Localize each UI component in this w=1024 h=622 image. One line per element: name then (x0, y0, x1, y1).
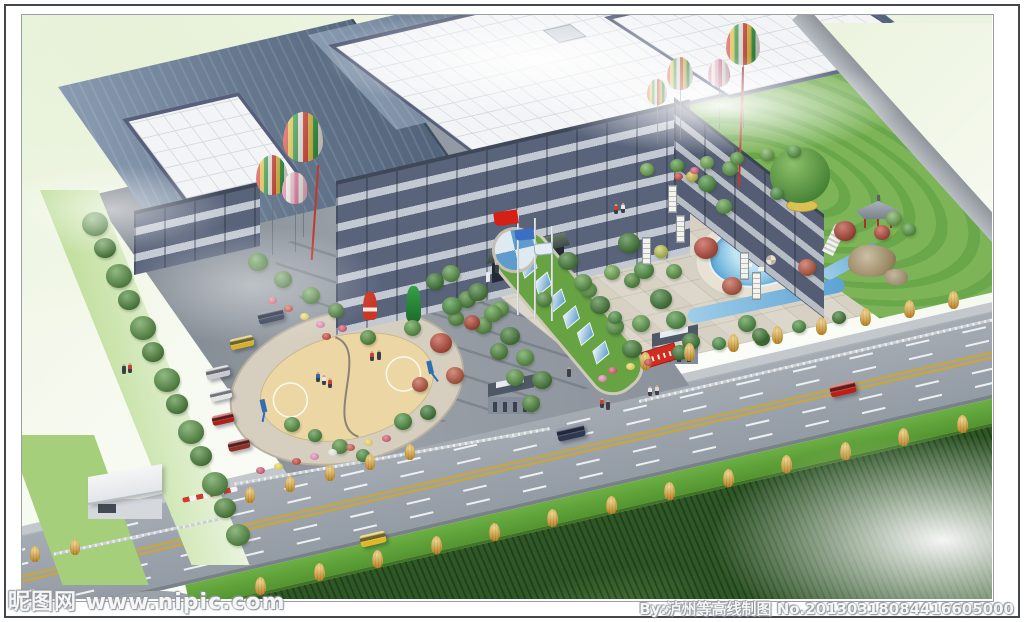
tree (640, 163, 654, 176)
tree (770, 187, 784, 200)
tree (632, 315, 650, 332)
tree (284, 417, 300, 432)
flagpole (517, 210, 519, 315)
glass-canopy (592, 340, 609, 364)
tree (886, 211, 902, 226)
flagpole (551, 226, 553, 321)
car (211, 412, 235, 427)
golden-tree (664, 482, 675, 500)
cloud-haze (122, 225, 382, 345)
person (621, 203, 625, 213)
pool-lounger (758, 267, 764, 271)
golden-tree (325, 465, 335, 481)
tree (226, 524, 250, 546)
tree (484, 305, 502, 322)
tree (666, 264, 682, 279)
tree (902, 223, 916, 236)
tree (700, 156, 714, 169)
person (567, 367, 571, 377)
golden-tree (30, 546, 40, 562)
tree (670, 159, 684, 172)
flagpole (534, 218, 536, 318)
flower-bush (382, 435, 391, 442)
golden-tree (728, 334, 739, 352)
tree (654, 245, 668, 258)
light-pylon (668, 185, 677, 213)
flower-bush (364, 439, 373, 446)
tree (650, 289, 672, 309)
golden-tree (70, 539, 80, 555)
golden-tree (816, 317, 827, 335)
golden-tree (957, 415, 968, 433)
tree (506, 369, 524, 386)
person (655, 385, 659, 395)
tree (446, 367, 464, 384)
tree (722, 277, 742, 295)
golden-tree (314, 563, 325, 581)
tree (426, 273, 444, 290)
tree (532, 371, 552, 389)
tree (214, 498, 236, 518)
tree (666, 311, 686, 329)
golden-tree (431, 536, 442, 554)
flower-bush (256, 467, 265, 474)
tree (308, 429, 322, 442)
tree (404, 320, 421, 336)
flower-bush (292, 458, 301, 465)
golden-tree (606, 496, 617, 514)
tree (394, 413, 412, 430)
light-pylon (752, 272, 761, 300)
tree (712, 337, 726, 350)
person (377, 350, 381, 360)
person (316, 372, 320, 382)
cloud-haze (542, 55, 902, 155)
person (328, 378, 332, 388)
tree (442, 297, 462, 315)
tree (574, 274, 592, 291)
flower-bush (328, 449, 337, 456)
tree (874, 225, 890, 240)
architectural-rendering: 昵图网 www.nipic.com By:泸州等高线制图 No.20130318… (0, 0, 1024, 622)
golden-tree (245, 487, 255, 503)
golden-tree (285, 476, 295, 492)
person (370, 351, 374, 361)
tree (608, 311, 622, 324)
golden-tree (948, 291, 959, 309)
tree (622, 340, 642, 358)
tree (798, 259, 816, 276)
person (495, 263, 499, 273)
flower-bush (674, 173, 683, 180)
light-pylon (740, 252, 749, 280)
tree (590, 296, 610, 314)
rock (884, 269, 908, 285)
tree (190, 446, 212, 466)
flower-bush (690, 167, 699, 174)
watermark-site-text: 昵图网 www.nipic.com (8, 584, 286, 616)
tree (142, 342, 164, 362)
golden-tree (372, 550, 383, 568)
white-flag (533, 242, 553, 256)
lion-statue (486, 271, 490, 282)
tree (558, 252, 578, 270)
tree (834, 221, 856, 241)
tree (442, 265, 460, 282)
flower-bush (274, 463, 283, 470)
golden-tree (904, 300, 915, 318)
tree (420, 405, 436, 420)
person (122, 364, 126, 374)
pool-umbrella (766, 255, 776, 265)
tree (752, 328, 768, 343)
person (606, 400, 610, 410)
tree (468, 283, 488, 301)
tree (536, 292, 552, 307)
mist-bottom-right (712, 435, 992, 599)
light-pylon (676, 215, 685, 243)
scene (22, 15, 992, 599)
golden-tree (860, 308, 871, 326)
tree (430, 333, 452, 353)
tree (412, 377, 428, 392)
flower-bush (598, 375, 607, 382)
tree (832, 311, 846, 324)
guard-house (88, 477, 162, 525)
tree (154, 368, 180, 392)
person (614, 204, 618, 214)
blue-flag (514, 228, 534, 241)
tree (522, 395, 540, 412)
flower-bush (310, 453, 319, 460)
golden-tree (684, 343, 695, 361)
golden-tree (489, 523, 500, 541)
tree (202, 472, 228, 496)
tree (500, 327, 520, 345)
golden-tree (365, 454, 375, 470)
flower-bush (608, 367, 617, 374)
tree (694, 237, 718, 259)
person (600, 398, 604, 408)
glass-canopy (563, 305, 580, 329)
person (128, 363, 132, 373)
tree (178, 420, 204, 444)
tree (792, 320, 806, 333)
golden-tree (405, 444, 415, 460)
tree (716, 199, 732, 214)
tree (604, 265, 620, 280)
flower-bush (644, 359, 653, 366)
tree (698, 175, 716, 192)
light-pylon (642, 237, 651, 265)
tree (490, 343, 508, 360)
flower-bush (626, 363, 635, 370)
green-bottle-sculpture (406, 286, 421, 322)
glass-canopy (577, 322, 594, 346)
tree (464, 315, 480, 330)
watermark-credit-text: By:泸州等高线制图 No.20130318084416605000 (639, 598, 1014, 619)
hot-air-balloon (282, 172, 308, 204)
flower-bush (346, 444, 355, 451)
tree (166, 394, 188, 414)
tree (516, 349, 534, 366)
golden-tree (772, 326, 783, 344)
golden-tree (547, 509, 558, 527)
person (648, 386, 652, 396)
tree (618, 233, 640, 253)
person (322, 375, 326, 385)
